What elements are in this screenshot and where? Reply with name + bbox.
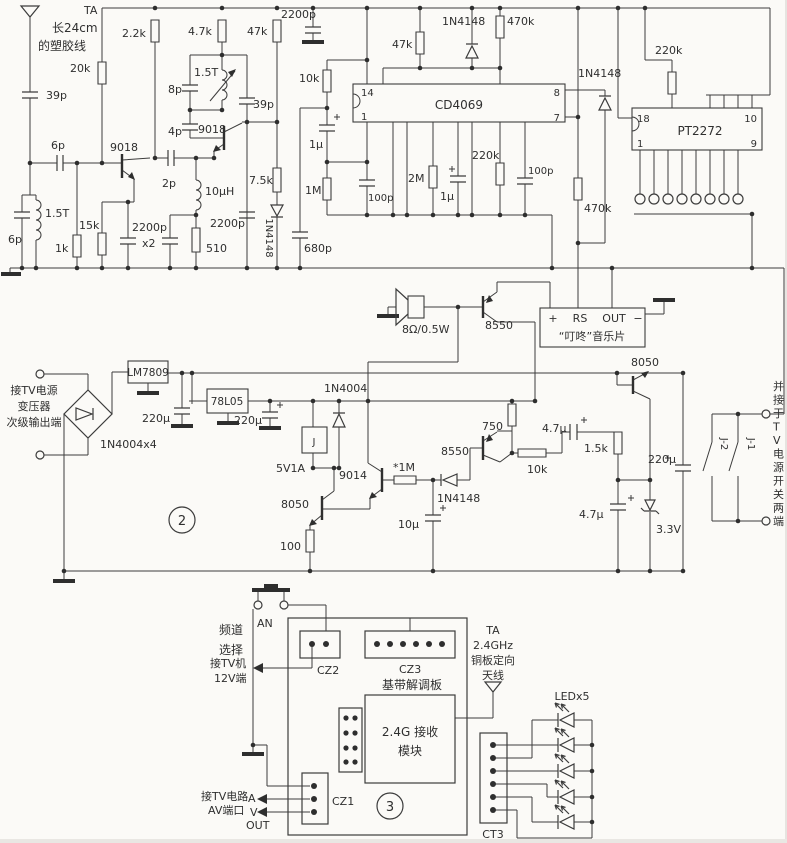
label-chip-name: “叮咚”音乐片 [559,329,625,343]
label-u4: 78L05 [211,396,244,408]
label-q7: 8550 [441,445,469,458]
label-u2p9: 9 [751,139,757,150]
module-header [339,708,362,772]
label-cz2: CZ2 [317,664,339,677]
speaker-icon [396,289,424,325]
label-led: LEDx5 [554,690,589,703]
label-c220u2: 220µ [234,414,262,427]
label-c2200p5: 2200p [281,8,316,21]
label-pwr2: 变压器 [18,399,51,413]
label-ta1: TA [83,4,98,17]
label-r10k1: 10k [299,72,320,85]
label-ant-note1: 长24cm [52,21,98,35]
led-icon [555,728,574,752]
connector-cz3 [365,631,455,658]
scan-edge-bottom [0,839,787,843]
label-c220u3: 220µ [648,453,676,466]
label-r10k2: 10k [527,463,548,476]
label-c100p2: 100p [528,166,553,177]
label-ant-note2: 的塑胶线 [38,38,86,53]
label-r750: 750 [482,420,503,433]
led-icon [555,754,574,778]
label-av2: AV端口 [208,804,244,817]
label-d2: 1N4148 [578,67,621,80]
label-ch2: 选择 [219,643,243,657]
label-u2p10: 10 [744,114,757,125]
label-l1: 1.5T [194,66,218,79]
label-u1p7: 7 [554,113,560,124]
label-r510: 510 [206,242,227,255]
led-icon [555,805,574,829]
label-r220k2: 220k [655,44,683,57]
label-r20k: 20k [70,62,91,75]
label-avA: A [248,792,256,805]
label-c2200p4: 2200p [210,217,245,230]
label-q2: 9018 [198,123,226,136]
label-c47u2: 4.7µ [579,508,604,521]
label-r2k2: 2.2k [122,27,146,40]
label-d4: 1N4004 [324,382,367,395]
label-pwr1: 接TV电源 [10,383,57,397]
label-c2200pa: 2200p [132,221,167,234]
label-r220k1: 220k [472,149,500,162]
label-r100: 100 [280,540,301,553]
label-u1p14: 14 [361,88,374,99]
label-bb: 基带解调板 [382,678,442,692]
label-avV: V [250,806,258,819]
label-u3: LM7809 [127,367,169,379]
label-r470k2: 470k [584,202,612,215]
label-c1u2: 1µ [440,190,454,203]
label-c220u1: 220µ [142,412,170,425]
label-r15k: 15k [79,219,100,232]
label-u1: CD4069 [435,98,483,112]
label-r2m: 2M [408,172,425,185]
label-r4k7: 4.7k [188,25,212,38]
antenna-2g4-icon [485,682,501,692]
label-cz3: CZ3 [399,663,421,676]
label-q6: 9014 [339,469,367,482]
label-u1p1: 1 [361,112,367,123]
module-2g4-box [365,695,455,783]
label-j1: J-1 [745,437,756,451]
label-q5: 8050 [281,498,309,511]
circuit-schematic: TA长24cm的塑胶线39p6p1.5T6p1k15k90182p2200px2… [0,0,787,843]
label-d5: 1N4148 [437,492,480,505]
schematic-page: TA长24cm的塑胶线39p6p1.5T6p1k15k90182p2200px2… [0,0,787,843]
label-relay-v: 5V1A [276,462,306,475]
label-u2: PT2272 [677,124,722,138]
label-j2: J-2 [718,437,729,451]
label-c100p1: 100p [368,193,393,204]
label-pwr3: 次级输出端 [7,415,62,429]
label-tv12a: 接TV机 [210,656,246,670]
label-r1m2: *1M [393,461,415,474]
label-r1k5: 1.5k [584,442,608,455]
label-r1k: 1k [55,242,69,255]
label-c2200pb: x2 [142,237,156,250]
label-r47k2: 47k [392,38,413,51]
label-q4: 8050 [631,356,659,369]
label-c39p1: 39p [46,89,67,102]
label-relay: J [312,437,316,448]
label-c47u1: 4.7µ [542,422,567,435]
label-mark3: 3 [386,800,394,815]
label-chip-rs: RS [573,312,588,325]
label-ta2b: 2.4GHz [473,639,513,652]
label-c2p: 2p [162,177,176,190]
label-d3: 1N4148 [263,218,274,257]
label-l2: 10µH [205,185,234,198]
label-r470k1: 470k [507,15,535,28]
label-chip-out: OUT [602,312,626,325]
label-q3: 8550 [485,319,513,332]
label-c1u1: 1µ [309,138,323,151]
label-c4p: 4p [168,125,182,138]
label-ta2c: 铜板定向 [471,653,515,667]
label-c8p: 8p [168,83,182,96]
antenna-icon [21,6,39,17]
label-l3: 1.5T [45,207,69,220]
led-column-icons [555,703,574,829]
label-u1p8: 8 [554,88,560,99]
label-c680p: 680p [304,242,332,255]
label-chip-minus: − [633,312,642,325]
label-bridge: 1N4004x4 [100,438,157,451]
label-chip-plus: + [548,312,557,325]
label-ta2a: TA [485,624,500,637]
label-c10u: 10µ [398,518,419,531]
label-mod2: 模块 [398,744,422,758]
label-u2p1: 1 [637,139,643,150]
label-q1: 9018 [110,141,138,154]
label-r7k5: 7.5k [249,174,273,187]
label-c6p1: 6p [51,139,65,152]
label-c6p2: 6p [8,233,22,246]
label-mod1: 2.4G 接收 [382,724,438,739]
label-ch1: 频道 [219,623,243,637]
label-spk: 8Ω/0.5W [402,323,450,336]
connector-cz2 [300,631,340,658]
led-icon [555,703,574,727]
label-mark2: 2 [178,514,186,529]
label-ta2d: 天线 [482,668,504,682]
label-r47k1: 47k [247,25,268,38]
label-av1: 接TV电路 [201,790,248,803]
label-u2p18: 18 [637,114,650,125]
label-cz1: CZ1 [332,795,354,808]
pt2272-output-terminals [635,194,743,204]
label-avOut: OUT [246,819,270,832]
label-an: AN [257,617,273,630]
label-tv12b: 12V端 [214,672,247,685]
label-r1m1: 1M [305,184,322,197]
label-d1: 1N4148 [442,15,485,28]
label-c39p2: 39p [253,98,274,111]
led-icon [555,780,574,804]
label-dz: 3.3V [656,523,681,536]
label-side-note: 并接于TV电源开关两端 [772,379,784,528]
